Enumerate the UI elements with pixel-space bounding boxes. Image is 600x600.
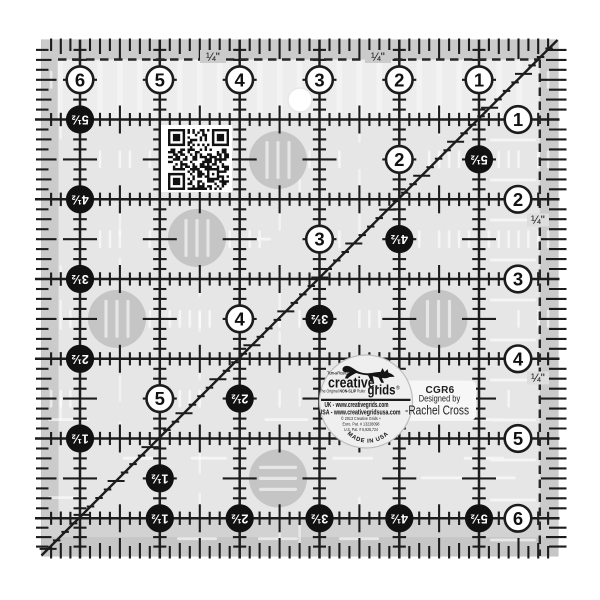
svg-text:5½: 5½ (71, 113, 88, 127)
svg-text:The Original NON-SLIP Ruler: The Original NON-SLIP Ruler (320, 389, 366, 394)
svg-text:3½: 3½ (71, 272, 88, 286)
svg-text:2½: 2½ (231, 511, 248, 525)
svg-text:3: 3 (513, 269, 523, 290)
svg-text:6: 6 (513, 508, 523, 529)
svg-text:5: 5 (513, 428, 523, 449)
svg-text:2: 2 (394, 69, 404, 90)
svg-text:¼": ¼" (371, 52, 385, 64)
svg-text:‑Rachel Cross: ‑Rachel Cross (405, 404, 469, 418)
svg-text:¼": ¼" (531, 373, 545, 385)
svg-text:© 2013 Creative Grids +: © 2013 Creative Grids + (341, 415, 381, 421)
svg-text:3½: 3½ (311, 511, 328, 525)
svg-text:5½: 5½ (470, 152, 487, 166)
svg-text:2½: 2½ (231, 392, 248, 406)
svg-text:1: 1 (474, 69, 484, 90)
svg-text:3: 3 (314, 69, 324, 90)
svg-text:4: 4 (235, 69, 246, 90)
svg-text:Euro. Pat. # 13228098: Euro. Pat. # 13228098 (343, 421, 380, 426)
svg-text:Designed by: Designed by (419, 394, 461, 404)
svg-text:3½: 3½ (311, 312, 328, 326)
svg-text:2: 2 (513, 189, 523, 210)
svg-text:grids: grids (368, 382, 396, 398)
svg-text:4½: 4½ (71, 192, 88, 206)
svg-text:1: 1 (513, 109, 523, 130)
svg-text:5: 5 (155, 388, 165, 409)
svg-text:U.S. Pat. # 6,925,724: U.S. Pat. # 6,925,724 (344, 427, 378, 432)
svg-text:4: 4 (513, 348, 524, 369)
svg-text:2: 2 (394, 149, 404, 170)
svg-text:2½: 2½ (71, 352, 88, 366)
svg-text:6: 6 (75, 69, 85, 90)
svg-text:4½: 4½ (391, 511, 408, 525)
svg-text:1½: 1½ (151, 511, 168, 525)
svg-text:¼": ¼" (206, 52, 220, 64)
svg-text:4½: 4½ (391, 232, 408, 246)
svg-text:¼": ¼" (531, 215, 545, 227)
svg-text:1½: 1½ (71, 432, 88, 446)
svg-text:5: 5 (155, 69, 165, 90)
svg-text:4: 4 (235, 308, 246, 329)
svg-text:®: ® (396, 385, 400, 392)
svg-text:5½: 5½ (470, 511, 487, 525)
svg-text:3: 3 (314, 229, 324, 250)
svg-text:1½: 1½ (151, 471, 168, 485)
